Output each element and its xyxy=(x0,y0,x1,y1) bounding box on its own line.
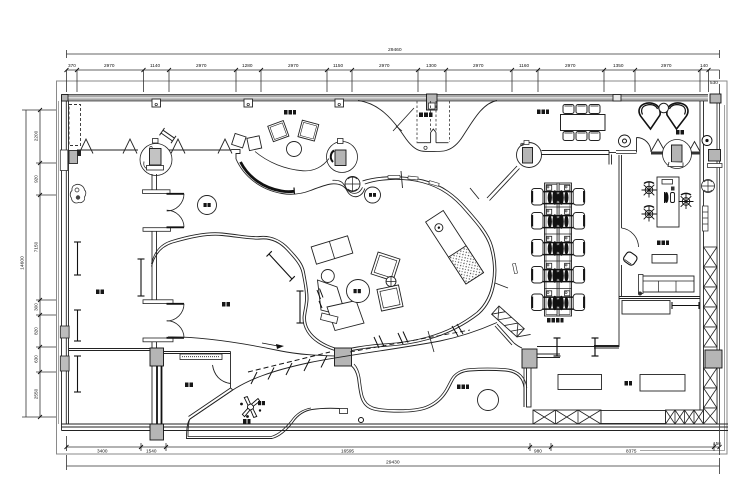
svg-text:29430: 29430 xyxy=(386,460,400,466)
svg-text:1540: 1540 xyxy=(146,449,157,454)
svg-text:2200: 2200 xyxy=(34,130,39,141)
svg-text:370: 370 xyxy=(68,63,76,68)
svg-text:980: 980 xyxy=(534,449,542,454)
svg-text:300: 300 xyxy=(34,303,39,311)
svg-text:1350: 1350 xyxy=(613,63,624,68)
svg-text:2970: 2970 xyxy=(379,63,390,68)
svg-text:3400: 3400 xyxy=(97,449,108,454)
svg-text:1160: 1160 xyxy=(519,63,529,68)
svg-text:630: 630 xyxy=(34,355,39,363)
svg-text:1150: 1150 xyxy=(333,63,343,68)
svg-text:2970: 2970 xyxy=(473,63,484,68)
svg-text:2970: 2970 xyxy=(661,63,672,68)
svg-text:920: 920 xyxy=(34,175,39,183)
svg-text:2970: 2970 xyxy=(565,63,576,68)
svg-text:150: 150 xyxy=(713,441,721,446)
svg-text:29460: 29460 xyxy=(388,47,402,53)
svg-text:2550: 2550 xyxy=(34,388,39,399)
svg-text:7150: 7150 xyxy=(34,241,39,252)
svg-text:2970: 2970 xyxy=(288,63,299,68)
svg-text:530: 530 xyxy=(710,80,718,85)
svg-text:1300: 1300 xyxy=(426,63,437,68)
svg-text:1140: 1140 xyxy=(150,63,160,68)
svg-text:2970: 2970 xyxy=(196,63,207,68)
svg-text:1280: 1280 xyxy=(242,63,253,68)
svg-text:14600: 14600 xyxy=(20,256,26,270)
svg-text:16595: 16595 xyxy=(341,449,354,454)
svg-text:820: 820 xyxy=(34,327,39,335)
svg-text:2970: 2970 xyxy=(104,63,115,68)
svg-text:8375: 8375 xyxy=(626,449,637,454)
svg-text:140: 140 xyxy=(700,63,708,68)
